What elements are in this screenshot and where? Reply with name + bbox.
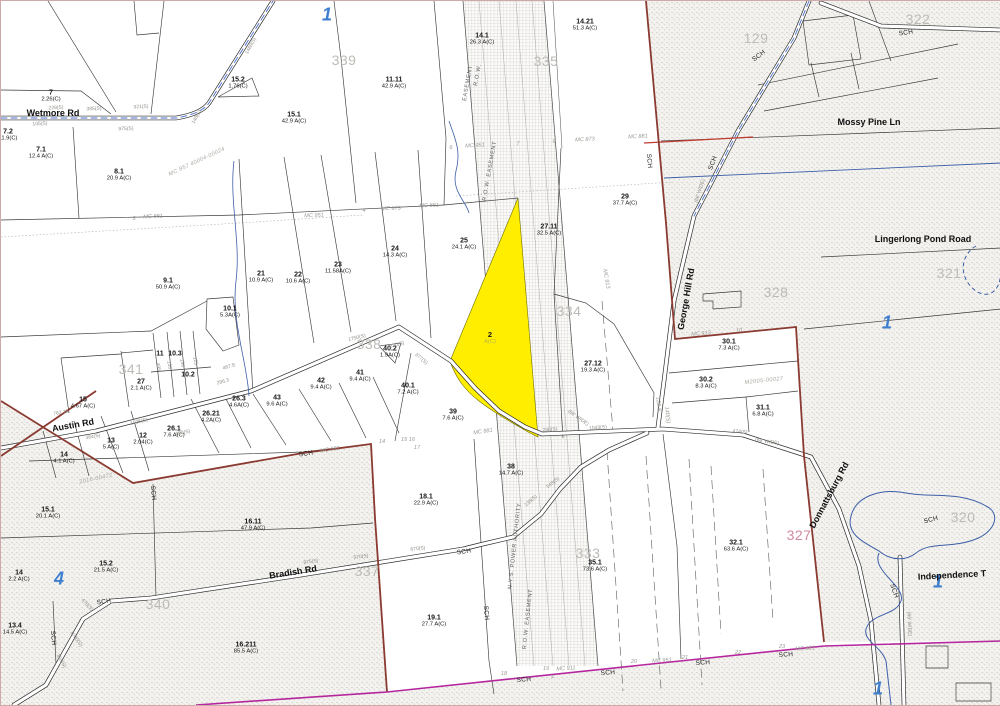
parcel-map-canvas [1,1,1000,705]
parcel-map-viewport[interactable]: 72.26(C)7.211.9(C)7.112.4 A(C)8.120.9 A(… [0,0,1000,706]
